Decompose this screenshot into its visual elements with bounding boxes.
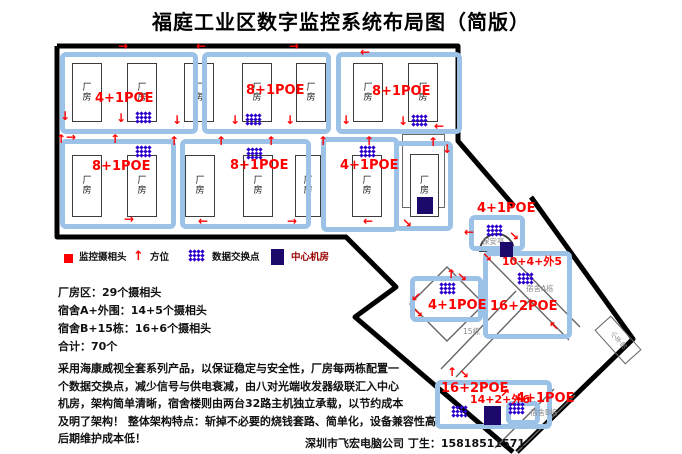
direction-arrow-icon: →	[118, 40, 128, 52]
camera-count-dorm-a: 10+4+外5	[502, 256, 562, 267]
direction-arrow-icon: ↘	[459, 368, 469, 380]
poe-label-group-2: 8+1POE	[246, 84, 304, 97]
direction-arrow-icon: ↘	[482, 251, 492, 263]
switch-point-icon	[189, 250, 205, 262]
dorm-a-label: 宿舍A栋	[526, 285, 554, 293]
direction-arrow-icon: ↖	[549, 320, 559, 332]
direction-arrow-icon: ↓	[285, 114, 295, 126]
switch-dot	[147, 153, 151, 157]
switch-point-icon	[247, 148, 263, 160]
summary-dorm-b: 宿舍B+15栋：16+6个摄相头	[58, 322, 211, 335]
small-house-label: 小平房	[608, 330, 627, 350]
poe-label-group-6: 4+1POE	[340, 159, 398, 172]
poe-label-group-4: 8+1POE	[92, 160, 150, 173]
direction-arrow-icon: →	[124, 213, 134, 225]
direction-arrow-icon: ↑	[133, 250, 144, 263]
direction-arrow-icon: ←	[363, 215, 373, 227]
switch-point-icon	[452, 406, 468, 418]
switch-dot	[371, 153, 375, 157]
switch-point-icon	[412, 115, 428, 127]
direction-arrow-icon: ←	[464, 226, 474, 238]
direction-arrow-icon: ↑	[446, 268, 456, 280]
direction-arrow-icon: ↑	[216, 135, 226, 147]
building-15-label: 15栋	[463, 328, 480, 336]
poe-label-group-3: 8+1POE	[372, 85, 430, 98]
switch-dot	[200, 257, 204, 261]
factory-group-4	[60, 139, 176, 229]
direction-arrow-icon: ←	[196, 40, 206, 52]
direction-arrow-icon: ↘	[402, 217, 412, 229]
server-room-icon	[500, 242, 513, 257]
switch-dot	[258, 155, 262, 159]
switch-point-icon	[246, 114, 262, 126]
switch-point-icon	[509, 403, 525, 415]
direction-arrow-icon: ↓	[442, 143, 452, 155]
server-room-icon	[484, 406, 501, 425]
direction-arrow-icon: ↙	[411, 291, 421, 303]
direction-arrow-icon: →	[289, 40, 299, 52]
switch-point-icon	[518, 273, 534, 285]
summary-total: 合计：70个	[58, 340, 117, 353]
direction-arrow-icon: ↑	[266, 135, 276, 147]
poe-label-guard-booth: 4+1POE	[477, 202, 535, 215]
direction-arrow-icon: ↑	[364, 135, 374, 147]
layout-diagram: 福庭工业区数字监控系统布局图（简版） 4+1POE 8+1POE 8+1POE …	[0, 0, 682, 454]
direction-arrow-icon: ←	[360, 46, 370, 58]
server-room-icon	[271, 249, 284, 265]
poe-label-group-5: 8+1POE	[230, 159, 288, 172]
company-signature: 深圳市飞宏电脑公司 丁生：15818511571	[305, 435, 525, 451]
direction-arrow-icon: ↑	[110, 133, 120, 145]
server-room-icon	[417, 197, 433, 214]
direction-arrow-icon: ↑	[56, 133, 66, 145]
poe-label-group-1: 4+1POE	[95, 92, 153, 105]
direction-arrow-icon: ↓	[341, 114, 351, 126]
switch-point-icon	[136, 112, 152, 124]
switch-dot	[257, 121, 261, 125]
switch-point-icon	[136, 146, 152, 158]
direction-arrow-icon: ↘	[509, 230, 519, 242]
camera-icon	[64, 254, 73, 263]
switch-dot	[147, 119, 151, 123]
direction-arrow-icon: ←	[434, 120, 444, 132]
direction-arrow-icon: →	[66, 131, 76, 143]
direction-arrow-icon: ↑	[169, 135, 179, 147]
direction-arrow-icon: ↗	[500, 387, 510, 399]
legend-direction-label: 方位	[150, 253, 169, 263]
switch-dot	[498, 232, 502, 236]
direction-arrow-icon: ↑	[318, 135, 328, 147]
direction-arrow-icon: ↘	[457, 271, 467, 283]
switch-dot	[463, 413, 467, 417]
direction-arrow-icon: ↓	[230, 114, 240, 126]
page-title: 福庭工业区数字监控系统布局图（简版）	[0, 6, 682, 35]
summary-factory: 厂房区：29个摄相头	[58, 286, 161, 299]
poe-label-dorm-a: 16+2POE	[490, 300, 558, 313]
switch-dot	[529, 280, 533, 284]
switch-dot	[451, 290, 455, 294]
direction-arrow-icon: ↓	[116, 112, 126, 124]
poe-label-dorm-left: 4+1POE	[428, 299, 486, 312]
direction-arrow-icon: ↘	[413, 307, 423, 319]
direction-arrow-icon: ←	[198, 215, 208, 227]
direction-arrow-icon: →	[287, 215, 297, 227]
direction-arrow-icon: ↓	[60, 110, 70, 122]
switch-point-icon	[440, 283, 456, 295]
legend-server-label: 中心机房	[291, 253, 329, 263]
direction-arrow-icon: ↑	[428, 136, 438, 148]
direction-arrow-icon: ↓	[172, 114, 182, 126]
switch-dot	[423, 122, 427, 126]
summary-dorm-a: 宿舍A+外围：14+5个摄相头	[58, 304, 207, 317]
direction-arrow-icon: ↑	[447, 366, 457, 378]
legend-switch-label: 数据交换点	[212, 253, 260, 263]
switch-dot	[520, 410, 524, 414]
direction-arrow-icon: ↓	[398, 115, 408, 127]
legend-camera-label: 监控摄相头	[79, 253, 127, 263]
switch-point-icon	[487, 225, 503, 237]
